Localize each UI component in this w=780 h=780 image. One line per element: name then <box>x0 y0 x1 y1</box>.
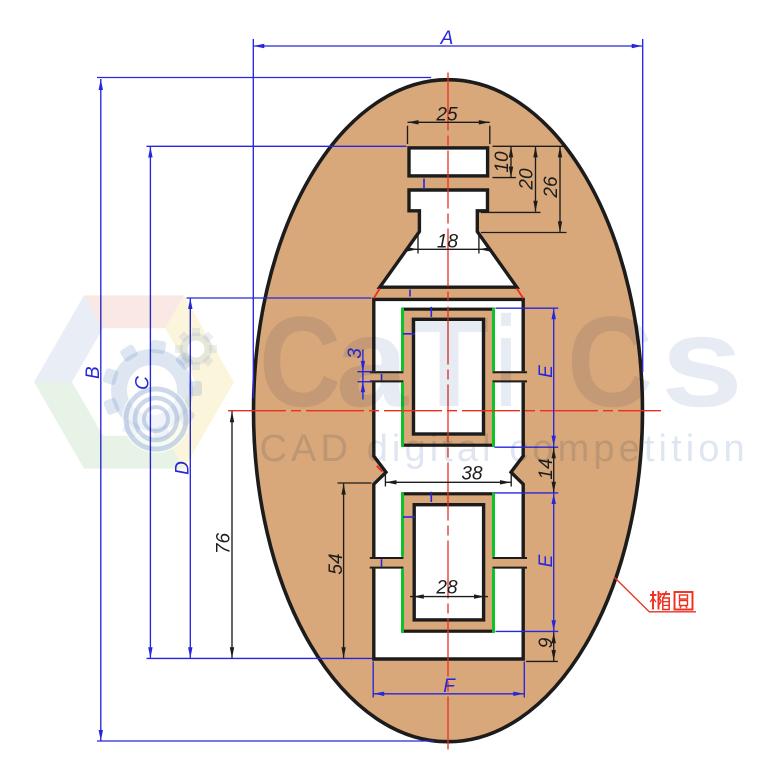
svg-text:E: E <box>536 554 557 567</box>
svg-text:F: F <box>443 676 456 697</box>
svg-text:C: C <box>259 291 341 434</box>
svg-text:i: i <box>496 291 516 434</box>
svg-text:T: T <box>409 291 489 434</box>
svg-text:28: 28 <box>435 578 458 599</box>
svg-text:E: E <box>536 365 557 378</box>
svg-text:25: 25 <box>435 104 458 125</box>
svg-text:CAD digital competition: CAD digital competition <box>260 428 749 470</box>
svg-text:54: 54 <box>326 553 347 574</box>
svg-text:C: C <box>567 291 653 434</box>
svg-text:B: B <box>83 366 104 379</box>
svg-text:26: 26 <box>541 176 562 199</box>
svg-text:10: 10 <box>492 151 513 173</box>
svg-text:A: A <box>440 28 454 49</box>
svg-text:a: a <box>336 291 410 434</box>
svg-text:9: 9 <box>536 637 557 648</box>
svg-text:18: 18 <box>437 231 459 252</box>
svg-text:20: 20 <box>517 168 538 191</box>
svg-text:s: s <box>661 291 743 434</box>
svg-text:76: 76 <box>214 533 235 555</box>
